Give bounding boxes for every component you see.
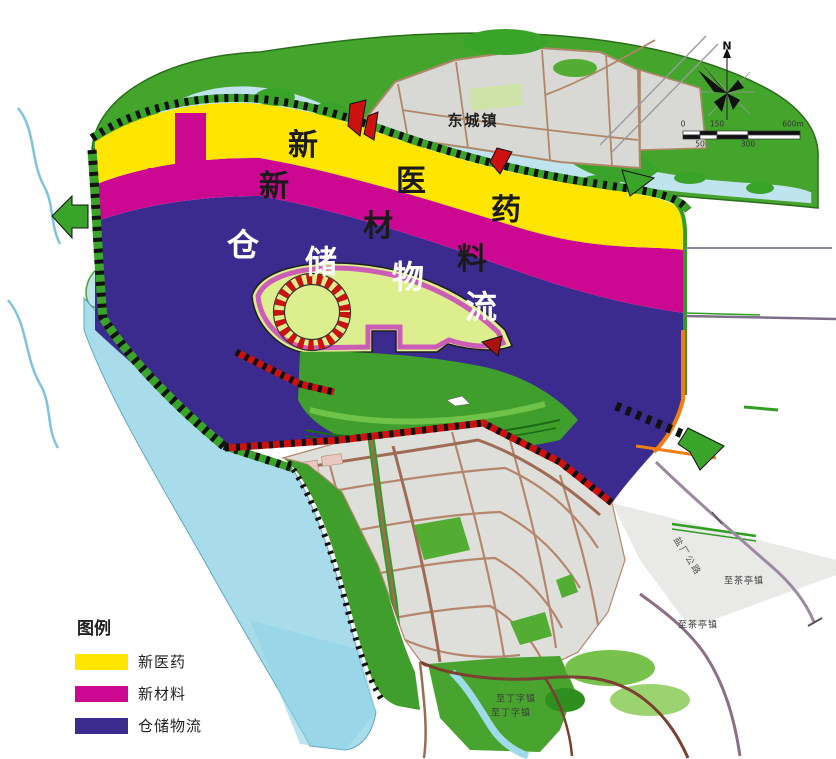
- legend-title: 图例: [77, 614, 245, 639]
- zone-label-char: 储: [305, 246, 337, 278]
- legend-label: 新医药: [138, 651, 186, 672]
- zone-label-char: 流: [465, 291, 497, 323]
- zone-label-char: 新: [259, 172, 289, 202]
- legend-row: 新材料: [75, 683, 245, 704]
- zone-label-char: 仓: [227, 229, 259, 261]
- legend-swatch-magenta: [75, 686, 128, 702]
- zone-label-char: 材: [363, 212, 393, 242]
- scale-tick-label: 0: [681, 120, 686, 129]
- zone-label-char: 料: [457, 245, 487, 275]
- zone-label-char: 药: [491, 196, 521, 226]
- destination-label: 至丁字镇: [496, 692, 536, 705]
- legend: 图例 新医药 新材料 仓储物流: [75, 614, 245, 747]
- legend-label: 新材料: [138, 683, 186, 704]
- legend-swatch-yellow: [75, 654, 128, 670]
- south-green-areas: [420, 650, 690, 758]
- scale-tick-label: 50: [695, 140, 705, 149]
- planning-map: 新 医 药 新 材 料 仓 储 物 流 东城镇 盐厂公路 至茶亭镇 至茶亭镇 至…: [0, 0, 836, 759]
- legend-row: 仓储物流: [75, 715, 245, 736]
- zone-label-char: 新: [288, 131, 318, 161]
- zone-label-char: 物: [392, 261, 424, 293]
- faded-plain: [612, 503, 836, 628]
- scale-tick-label: 300: [741, 140, 755, 149]
- river-channels: [8, 108, 60, 448]
- scale-tick-label: 150: [710, 120, 724, 129]
- legend-label: 仓储物流: [138, 715, 202, 736]
- destination-label: 至茶亭镇: [678, 618, 718, 631]
- destination-label: 至丁字镇: [491, 706, 531, 719]
- scale-tick-label: 600m: [782, 120, 804, 129]
- town-label: 东城镇: [447, 110, 498, 131]
- legend-row: 新医药: [75, 651, 245, 672]
- destination-label: 至茶亭镇: [724, 574, 764, 587]
- arrow-southeast: [678, 428, 724, 470]
- compass-north-label: N: [722, 40, 731, 53]
- arrow-west: [52, 196, 88, 238]
- zone-label-char: 医: [396, 167, 426, 197]
- scale-bar: [683, 131, 800, 139]
- legend-swatch-purple: [75, 718, 128, 734]
